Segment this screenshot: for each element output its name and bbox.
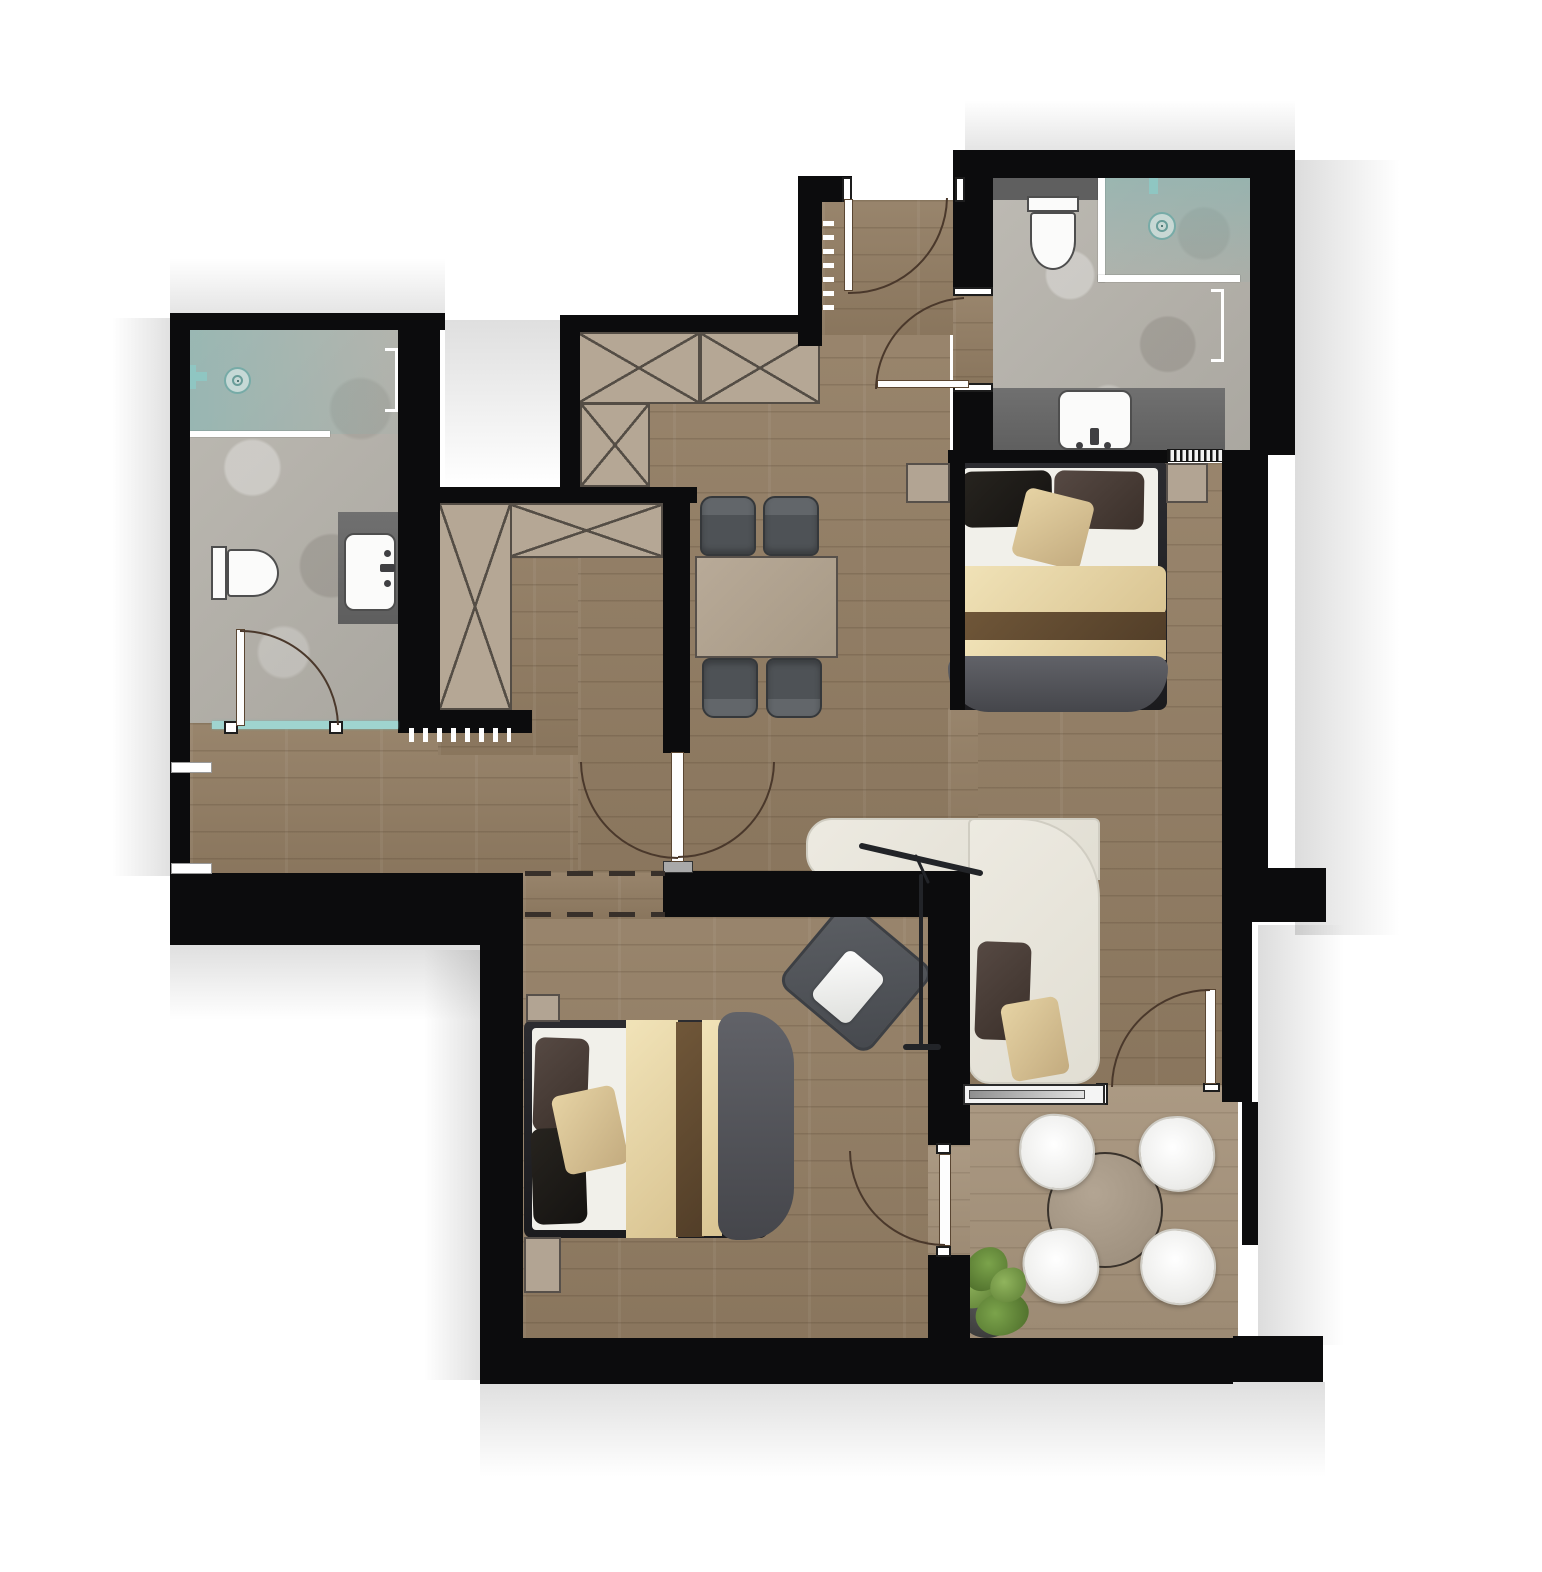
nightstand-left-a xyxy=(526,994,560,1022)
bed-right-blanket xyxy=(956,566,1166,616)
nightstand-right-b xyxy=(1166,463,1208,503)
radiator-bath-top xyxy=(1211,289,1224,362)
shadow-left xyxy=(112,318,170,876)
wall-balcony-rail xyxy=(1242,1102,1258,1245)
wall-bottom xyxy=(480,1338,1233,1384)
wall-east-jut xyxy=(1222,868,1326,922)
dining-table xyxy=(695,556,838,658)
wall-bedroom-left-east-lower xyxy=(928,1255,970,1338)
toilet-left-tank xyxy=(211,546,227,600)
shadow-top-bath-left xyxy=(170,258,445,313)
toilet-left-bowl xyxy=(227,549,279,597)
wall-hall-bottom xyxy=(170,873,523,945)
wall-partition-living xyxy=(950,450,965,710)
shadow-notch xyxy=(445,320,560,487)
shower-drain-top xyxy=(1148,212,1176,240)
sink-left-dot-b xyxy=(384,580,391,587)
door-post-living-balcony xyxy=(1203,1083,1220,1092)
door-post-bedroom-balcony-b xyxy=(936,1246,951,1257)
bed-left-blanket xyxy=(626,1020,678,1238)
wall-bedroom-right-top xyxy=(948,450,1168,463)
wardrobe-hall-c xyxy=(580,403,650,487)
door-post-bath-top-a xyxy=(953,287,993,296)
sink-top-faucet xyxy=(1090,428,1099,445)
toilet-top-bowl xyxy=(1030,212,1076,270)
door-leaf-living xyxy=(671,752,684,862)
radiator-ticks-hall xyxy=(409,728,511,742)
vent-hatch-bedroom-right xyxy=(1167,449,1223,462)
bed-left-footboard xyxy=(718,1012,794,1240)
door-leaf-living-balcony xyxy=(1205,989,1216,1084)
wall-bedroom-right-east xyxy=(1222,450,1268,875)
shower-area-left xyxy=(190,330,398,434)
shadow-top-entry xyxy=(965,100,1295,150)
dining-chair-se xyxy=(766,658,822,718)
door-leaf-bath-left xyxy=(236,629,245,726)
passage-dash-a xyxy=(525,871,665,876)
shower-head-left-icon-b xyxy=(187,372,207,381)
nightstand-left-b xyxy=(524,1237,561,1293)
wall-bedroom-left-west xyxy=(480,945,523,1338)
door-leaf-bath-top xyxy=(877,380,969,388)
floor-entry-bath-threshold xyxy=(953,295,993,386)
shower-head-top-icon-b xyxy=(1149,176,1158,194)
shadow-right-lower xyxy=(1258,925,1344,1345)
wall-living-west xyxy=(560,315,580,487)
sink-left-dot-a xyxy=(384,550,391,557)
door-post-bedroom-balcony-a xyxy=(936,1143,951,1154)
sink-left-faucet xyxy=(380,564,395,572)
shower-glass-left xyxy=(190,431,330,437)
shadow-bottom xyxy=(480,1382,1325,1477)
bed-right-footboard xyxy=(948,656,1168,712)
wall-living-top xyxy=(560,315,822,332)
floor-plan-canvas xyxy=(0,0,1542,1572)
wall-niche-top xyxy=(420,487,697,503)
wall-bath-top-east xyxy=(1250,150,1295,455)
radiator-ticks-entry xyxy=(823,221,834,313)
shower-drain-left xyxy=(224,367,251,394)
door-post-entry-b xyxy=(955,177,965,202)
wall-balcony-corner xyxy=(1233,1336,1323,1382)
wall-bath-left-west xyxy=(170,313,190,875)
wall-bedroom-left-east-upper xyxy=(928,917,970,1145)
sink-left xyxy=(344,533,396,611)
wall-niche-east xyxy=(663,503,690,753)
wall-bedroom-left-top xyxy=(663,871,970,917)
wall-living-east xyxy=(1222,922,1252,1102)
wardrobe-hall-a xyxy=(578,332,700,404)
door-leaf-bedroom-balcony xyxy=(939,1154,951,1246)
nightstand-right-a xyxy=(906,463,950,503)
door-post-bath-left-b xyxy=(329,721,343,734)
passage-dash-b xyxy=(525,912,665,917)
dining-chair-nw xyxy=(700,496,756,556)
wall-bath-top-north xyxy=(965,150,1295,178)
shower-glass-top-vertical xyxy=(1098,178,1105,282)
wall-niche-west xyxy=(420,503,438,710)
shadow-right xyxy=(1295,160,1400,935)
balcony-window-bar xyxy=(969,1090,1085,1099)
floor-entry xyxy=(822,200,953,335)
sink-top-dot-b xyxy=(1104,442,1111,449)
bed-right-blanket-stripe xyxy=(956,612,1166,642)
dining-chair-ne xyxy=(763,496,819,556)
wardrobe-niche-wide xyxy=(510,503,663,558)
sink-top-dot-a xyxy=(1076,442,1083,449)
window-hall-a xyxy=(171,762,212,773)
dining-chair-sw xyxy=(702,658,758,718)
radiator-bath-left xyxy=(385,348,398,412)
door-post-living-bottom xyxy=(663,861,693,873)
shadow-bottom-hall xyxy=(170,945,480,1020)
window-hall-b xyxy=(171,863,212,874)
shower-glass-top-horizontal xyxy=(1098,275,1240,282)
bed-left-blanket-stripe xyxy=(676,1022,704,1237)
door-leaf-entry xyxy=(844,199,853,291)
wardrobe-niche-tall xyxy=(438,503,512,710)
toilet-top-tank xyxy=(1027,196,1079,212)
